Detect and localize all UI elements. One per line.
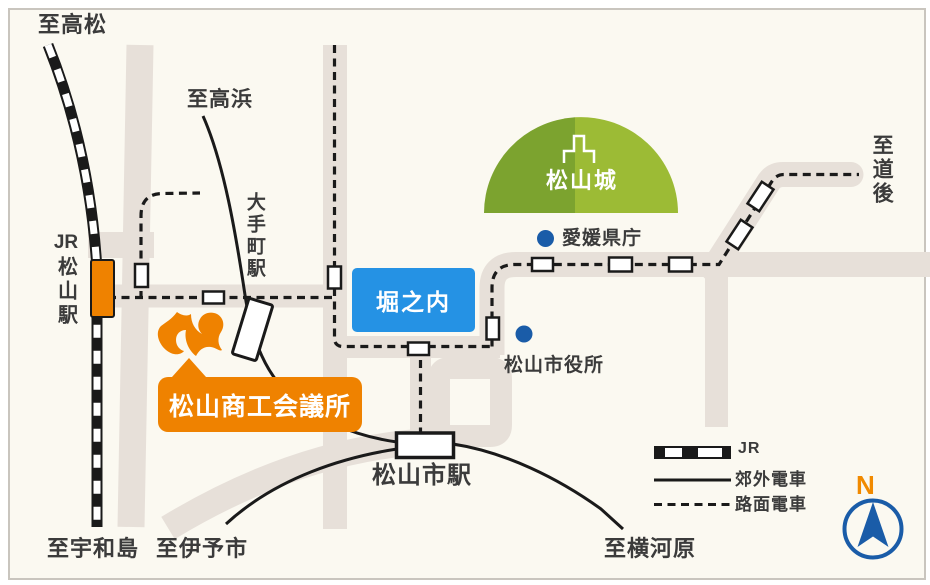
- label-to-takahama: 至高浜: [187, 88, 253, 112]
- label-matsuyamashi-station: 松山市駅: [372, 462, 472, 490]
- legend-tram-label: 路面電車: [735, 495, 807, 515]
- compass-north-label: N: [856, 471, 876, 501]
- legend-suburban-label: 郊外電車: [735, 470, 807, 490]
- label-to-iyoshi: 至伊予市: [156, 536, 248, 561]
- tram-stop: [408, 343, 429, 356]
- jr-matsuyama-name: 松山駅: [52, 256, 81, 328]
- tram-stop: [532, 258, 553, 271]
- jr-prefix: JR: [54, 232, 78, 254]
- matsuyamashi-station-marker: [397, 433, 454, 458]
- tram-stop: [135, 264, 148, 287]
- tram-stop: [609, 258, 632, 272]
- prefectural-office-dot: [537, 230, 554, 247]
- compass: [845, 501, 902, 558]
- matsuyama-access-map: 至高松 至高浜 JR 松山駅 大手町駅 松山城 愛媛県庁 堀之内 松山市役所 松…: [0, 0, 930, 585]
- legend-jr-bar-icon: [654, 446, 731, 459]
- tram-stop: [669, 258, 692, 272]
- horinouchi-label: 堀之内: [376, 283, 451, 317]
- label-to-uwajima: 至宇和島: [47, 536, 139, 561]
- chamber-of-commerce-label: 松山商工会議所: [169, 387, 351, 423]
- tram-stop: [203, 292, 224, 304]
- label-prefectural-office: 愛媛県庁: [562, 228, 642, 250]
- label-to-dogo: 至道後: [869, 134, 893, 206]
- label-jr-matsuyama-station: JR 松山駅: [51, 232, 81, 328]
- label-to-yokogawara: 至横河原: [604, 536, 696, 561]
- horinouchi-area: 堀之内: [352, 268, 475, 332]
- jr-matsuyama-station-marker: [91, 260, 114, 317]
- legend-jr-label: JR: [738, 440, 760, 458]
- city-hall-dot: [516, 326, 533, 343]
- label-to-takamatsu: 至高松: [38, 12, 107, 37]
- chamber-of-commerce-callout: 松山商工会議所: [158, 377, 362, 432]
- label-city-hall: 松山市役所: [504, 355, 604, 377]
- label-matsuyama-castle: 松山城: [546, 168, 618, 193]
- label-otemachi-station: 大手町駅: [243, 192, 265, 280]
- tram-stop: [328, 267, 341, 289]
- tram-stop: [487, 318, 500, 340]
